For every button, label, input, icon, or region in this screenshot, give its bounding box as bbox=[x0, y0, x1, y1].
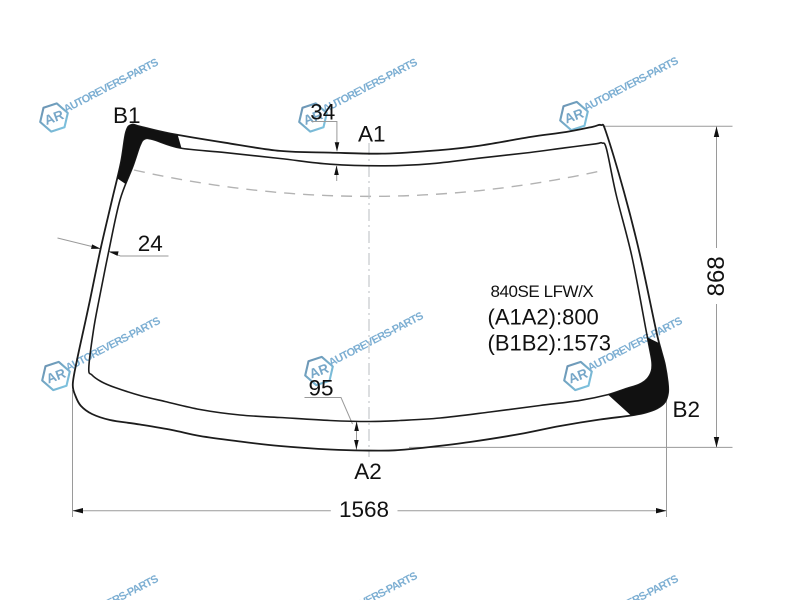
svg-text:34: 34 bbox=[310, 99, 335, 124]
svg-text:1568: 1568 bbox=[339, 497, 389, 522]
svg-text:A1: A1 bbox=[358, 122, 386, 147]
svg-text:(A1A2):800: (A1A2):800 bbox=[488, 304, 599, 329]
svg-text:868: 868 bbox=[703, 256, 730, 296]
svg-text:A2: A2 bbox=[354, 459, 382, 484]
svg-text:24: 24 bbox=[138, 231, 163, 256]
svg-text:B1: B1 bbox=[113, 103, 141, 128]
svg-text:840SE LFW/X: 840SE LFW/X bbox=[491, 282, 594, 301]
svg-text:(B1B2):1573: (B1B2):1573 bbox=[488, 330, 612, 355]
svg-text:B2: B2 bbox=[673, 397, 701, 422]
svg-text:95: 95 bbox=[309, 376, 334, 401]
